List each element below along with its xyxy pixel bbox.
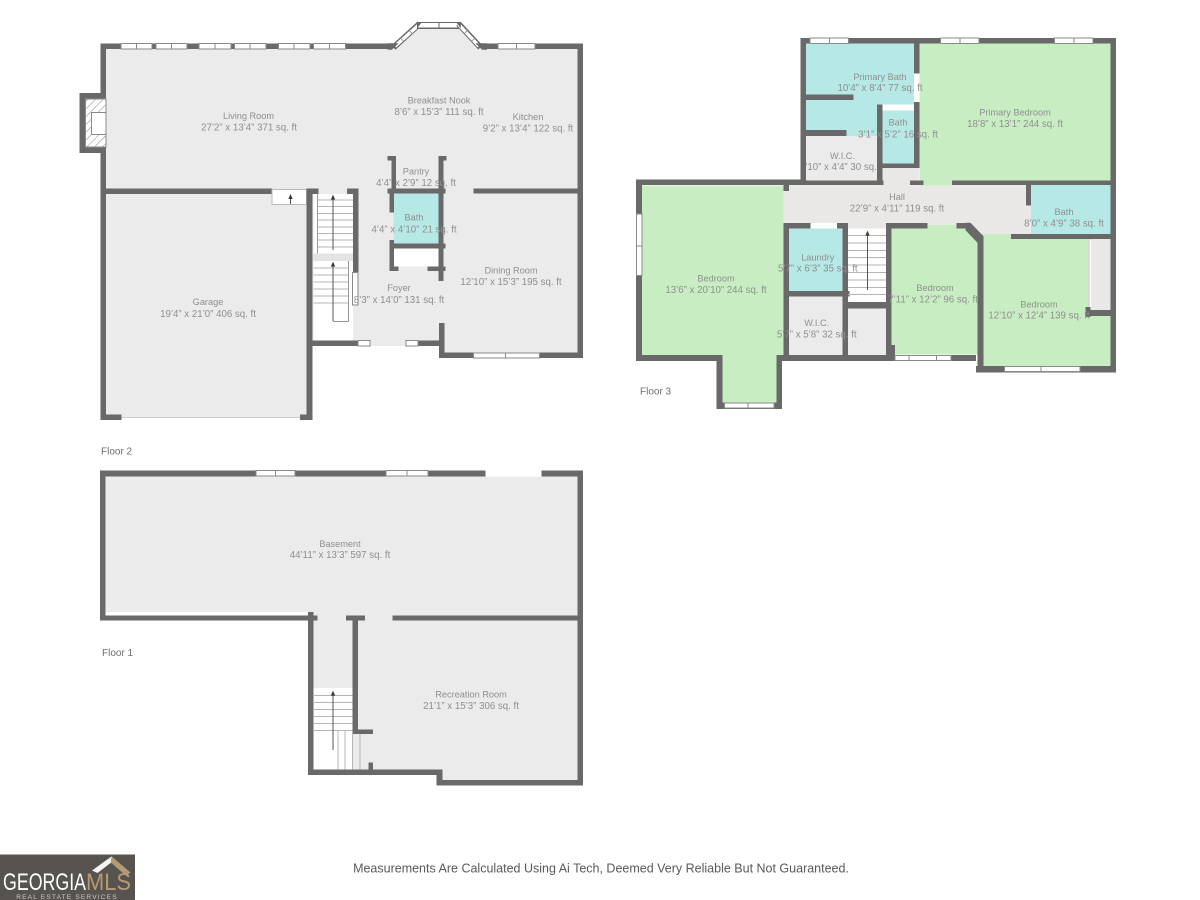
svg-text:REAL ESTATE SERVICES: REAL ESTATE SERVICES: [16, 894, 118, 900]
svg-text:8’3” x 14’0” 131 sq. ft: 8’3” x 14’0” 131 sq. ft: [354, 295, 445, 306]
svg-text:W.I.C.: W.I.C.: [830, 151, 855, 161]
svg-text:27’2” x 13’4” 371 sq. ft: 27’2” x 13’4” 371 sq. ft: [201, 123, 297, 134]
svg-text:9’2” x 13’4” 122 sq. ft: 9’2” x 13’4” 122 sq. ft: [483, 124, 574, 135]
svg-text:4’4” x 2’9” 12 sq. ft: 4’4” x 2’9” 12 sq. ft: [376, 178, 456, 189]
svg-text:Bedroom: Bedroom: [1020, 300, 1058, 310]
svg-text:Living Room: Living Room: [223, 111, 274, 121]
svg-text:Floor 3: Floor 3: [640, 387, 672, 398]
svg-text:Pantry: Pantry: [403, 167, 430, 177]
svg-text:Breakfast Nook: Breakfast Nook: [408, 96, 471, 106]
svg-text:Primary Bedroom: Primary Bedroom: [979, 108, 1051, 118]
svg-text:Garage: Garage: [193, 297, 224, 307]
svg-text:Recreation Room: Recreation Room: [435, 690, 507, 700]
svg-text:12’10” x 15’3” 195 sq. ft: 12’10” x 15’3” 195 sq. ft: [460, 277, 562, 288]
svg-text:18’8” x 13’1” 244 sq. ft: 18’8” x 13’1” 244 sq. ft: [967, 119, 1063, 130]
svg-text:Bath: Bath: [405, 213, 424, 223]
svg-text:13’6” x 20’10” 244 sq. ft: 13’6” x 20’10” 244 sq. ft: [665, 285, 767, 296]
svg-text:Measurements Are Calculated Us: Measurements Are Calculated Using Ai Tec…: [353, 862, 849, 876]
svg-text:19’4” x 21’0” 406 sq. ft: 19’4” x 21’0” 406 sq. ft: [160, 309, 256, 320]
svg-text:Bath: Bath: [1055, 207, 1074, 217]
svg-text:4’4” x 4’10” 21 sq. ft: 4’4” x 4’10” 21 sq. ft: [371, 225, 456, 236]
svg-text:5’7” x 6’3” 35 sq. ft: 5’7” x 6’3” 35 sq. ft: [778, 264, 858, 275]
svg-text:Bath: Bath: [889, 118, 908, 128]
svg-text:GEORGIA: GEORGIA: [3, 869, 86, 896]
svg-text:Foyer: Foyer: [387, 283, 411, 293]
svg-text:Dining Room: Dining Room: [484, 266, 537, 276]
svg-text:8’0” x 4’9” 38 sq. ft: 8’0” x 4’9” 38 sq. ft: [1024, 219, 1104, 230]
svg-text:44’11” x 13’3” 597 sq. ft: 44’11” x 13’3” 597 sq. ft: [290, 550, 391, 561]
svg-text:7’11” x 12’2” 96 sq. ft: 7’11” x 12’2” 96 sq. ft: [888, 295, 978, 306]
svg-text:3’1” x 5’2” 16 sq. ft: 3’1” x 5’2” 16 sq. ft: [858, 130, 938, 141]
svg-text:Floor 2: Floor 2: [101, 447, 133, 458]
svg-text:5’7” x 5’8” 32 sq. ft: 5’7” x 5’8” 32 sq. ft: [777, 330, 857, 341]
svg-text:Primary Bath: Primary Bath: [853, 72, 906, 82]
svg-text:Laundry: Laundry: [801, 253, 835, 263]
svg-text:12’10” x 12’4” 139 sq. ft: 12’10” x 12’4” 139 sq. ft: [988, 311, 1090, 322]
svg-text:’10” x 4’4” 30 sq.: ’10” x 4’4” 30 sq.: [805, 162, 877, 173]
svg-text:Bedroom: Bedroom: [916, 283, 954, 293]
svg-text:W.I.C.: W.I.C.: [804, 318, 829, 328]
svg-text:21’1” x 15’3” 306 sq. ft: 21’1” x 15’3” 306 sq. ft: [423, 701, 519, 712]
svg-text:8’6” x 15’3” 111 sq. ft: 8’6” x 15’3” 111 sq. ft: [394, 107, 483, 118]
svg-text:Kitchen: Kitchen: [513, 112, 544, 122]
svg-text:MLS: MLS: [86, 869, 131, 896]
svg-text:Basement: Basement: [319, 539, 361, 549]
svg-text:Floor 1: Floor 1: [102, 648, 134, 659]
svg-text:10’4” x 8’4” 77 sq. ft: 10’4” x 8’4” 77 sq. ft: [837, 83, 922, 94]
svg-text:Hall: Hall: [889, 192, 905, 202]
svg-text:Bedroom: Bedroom: [697, 274, 735, 284]
svg-text:22’9” x 4’11” 119 sq. ft: 22’9” x 4’11” 119 sq. ft: [850, 204, 945, 215]
